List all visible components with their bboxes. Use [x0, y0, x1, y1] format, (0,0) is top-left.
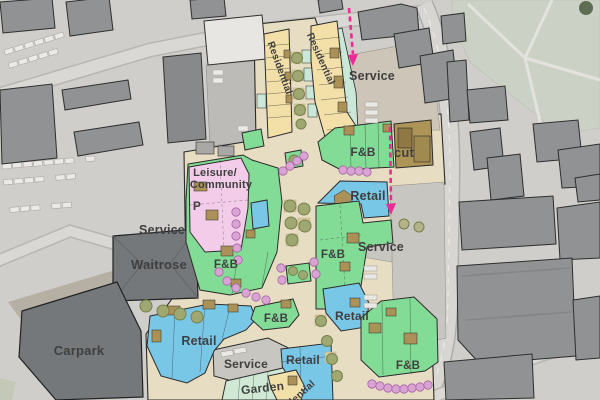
park-tree-icon [579, 1, 593, 15]
label-retail-bottom: Retail [286, 353, 320, 367]
label-service-bottom: Service [224, 357, 268, 371]
label-parking: P [193, 199, 201, 213]
label-service-left: Service [139, 223, 185, 237]
label-waitrose: Waitrose [131, 257, 187, 272]
label-cut: cut [394, 145, 415, 160]
label-service-right: Service [358, 240, 404, 254]
label-retail-left: Retail [181, 334, 216, 348]
label-fnb-mid: F&B [321, 249, 345, 261]
label-fnb-bottom-right: F&B [396, 360, 420, 372]
label-leisure-line1: Leisure/ [193, 167, 237, 179]
masterplan-map: Residential Residential Residential Serv… [0, 0, 600, 400]
label-fnb-left: F&B [214, 259, 238, 271]
label-retail-mid-right: Retail [335, 309, 369, 323]
label-fnb-top: F&B [350, 145, 375, 159]
label-carpark: Carpark [54, 343, 105, 358]
label-service-top: Service [349, 69, 395, 83]
label-retail-upper: Retail [350, 189, 385, 203]
label-fnb-bottom-left: F&B [264, 313, 288, 325]
masterplan-svg: Residential Residential Residential Serv… [0, 0, 600, 400]
label-leisure-line2: Community [190, 179, 253, 191]
